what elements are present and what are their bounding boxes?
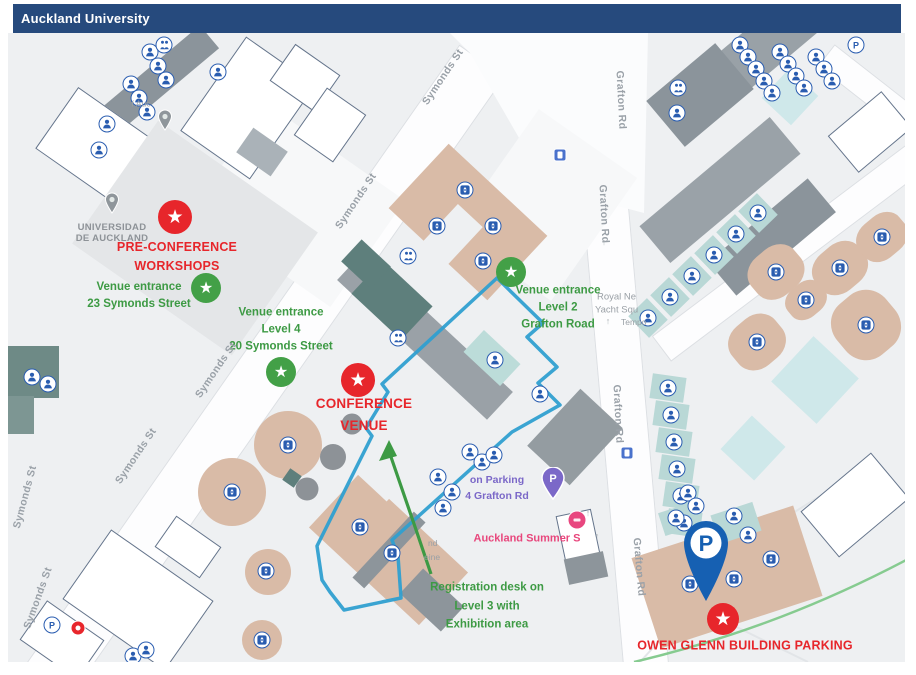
person-icon[interactable] xyxy=(666,434,683,451)
wc-icon[interactable] xyxy=(156,37,173,54)
entrance-23-marker[interactable]: ★ xyxy=(191,273,221,303)
lift-icon[interactable] xyxy=(258,563,275,580)
person-icon[interactable] xyxy=(660,380,677,397)
lift-icon[interactable] xyxy=(858,317,875,334)
person-icon[interactable] xyxy=(435,500,452,517)
person-icon[interactable] xyxy=(138,642,155,659)
person-icon[interactable] xyxy=(487,352,504,369)
building xyxy=(800,452,905,557)
place-label-summer-school: Auckland Summer S xyxy=(474,531,581,548)
person-icon[interactable] xyxy=(40,376,57,393)
person-icon[interactable] xyxy=(669,105,686,122)
building xyxy=(720,415,785,480)
wc-icon[interactable] xyxy=(400,248,417,265)
registration-arrowhead xyxy=(379,440,397,461)
person-icon[interactable] xyxy=(486,447,503,464)
place-label-uni-fragment: f Auc xyxy=(132,96,151,113)
bus-stop-icon[interactable] xyxy=(621,447,634,460)
building xyxy=(8,396,34,434)
red-poi-icon[interactable] xyxy=(71,621,86,636)
road-arrow-icon: ↑ xyxy=(595,531,600,541)
person-icon[interactable] xyxy=(662,289,679,306)
person-icon[interactable] xyxy=(750,205,767,222)
lift-icon[interactable] xyxy=(874,229,891,246)
person-icon[interactable] xyxy=(824,73,841,90)
annotation-entrance-l4: Venue entrance Level 4 20 Symonds Street xyxy=(229,305,333,356)
svg-text:P: P xyxy=(549,473,556,485)
person-icon[interactable] xyxy=(684,268,701,285)
person-icon[interactable] xyxy=(764,85,781,102)
person-icon[interactable] xyxy=(532,386,549,403)
owen-glenn-marker[interactable]: ★ xyxy=(707,603,739,635)
svg-text:P: P xyxy=(699,531,714,556)
lift-icon[interactable] xyxy=(798,292,815,309)
page-title: Auckland University xyxy=(21,11,150,26)
p-circle-icon[interactable]: P xyxy=(848,37,865,54)
owen-glenn-parking-pin[interactable]: P xyxy=(681,519,731,603)
map-pin-icon[interactable] xyxy=(104,192,120,214)
place-label-royal-3: Tempo xyxy=(621,317,647,327)
map-fragment-1: nd xyxy=(428,538,437,548)
road-arrow-icon: ↑ xyxy=(586,508,591,518)
lift-icon[interactable] xyxy=(429,218,446,235)
p-circle-icon[interactable]: P xyxy=(44,617,61,634)
lift-icon[interactable] xyxy=(224,484,241,501)
person-icon[interactable] xyxy=(728,226,745,243)
summer-school-marker[interactable] xyxy=(568,511,587,530)
person-icon[interactable] xyxy=(740,527,757,544)
campus-map: PP xyxy=(8,33,905,662)
entrance-l2-marker[interactable]: ★ xyxy=(496,257,526,287)
entrance-l4-marker[interactable]: ★ xyxy=(266,357,296,387)
person-icon[interactable] xyxy=(669,461,686,478)
road-arrow-icon: ↑ xyxy=(602,237,607,247)
annotation-entrance-l2: Venue entrance Level 2 Grafton Road xyxy=(515,283,600,334)
person-icon[interactable] xyxy=(158,72,175,89)
annotation-owen-glenn: OWEN GLENN BUILDING PARKING xyxy=(637,637,853,656)
annotation-entrance-23: Venue entrance 23 Symonds Street xyxy=(87,279,191,313)
building xyxy=(320,444,346,470)
building xyxy=(296,478,319,501)
lift-icon[interactable] xyxy=(457,182,474,199)
lift-icon[interactable] xyxy=(475,253,492,270)
lift-icon[interactable] xyxy=(384,545,401,562)
annotation-conference-venue: CONFERENCE VENUE xyxy=(316,393,413,437)
map-fragment-2: eine xyxy=(424,552,440,562)
person-icon[interactable] xyxy=(210,64,227,81)
title-bar: Auckland University xyxy=(13,4,901,33)
pre-conference-marker[interactable]: ★ xyxy=(158,200,192,234)
road-arrow-icon: ↑ xyxy=(606,316,611,326)
person-icon[interactable] xyxy=(24,369,41,386)
person-icon[interactable] xyxy=(663,407,680,424)
lift-icon[interactable] xyxy=(280,437,297,454)
place-label-royal-2: Yacht Squ xyxy=(595,305,638,316)
annotation-pre-conference: PRE-CONFERENCE WORKSHOPS xyxy=(117,238,237,276)
place-label-wilson-parking: on Parking 4 Grafton Rd xyxy=(465,472,529,504)
person-icon[interactable] xyxy=(706,247,723,264)
lift-icon[interactable] xyxy=(254,632,271,649)
annotation-registration: Registration desk on Level 3 with Exhibi… xyxy=(430,578,544,634)
map-pin-icon[interactable] xyxy=(157,109,173,131)
person-icon[interactable] xyxy=(444,484,461,501)
place-label-royal-1: Royal Ne xyxy=(597,292,636,303)
conference-venue-marker[interactable]: ★ xyxy=(341,363,375,397)
person-icon[interactable] xyxy=(91,142,108,159)
lift-icon[interactable] xyxy=(352,519,369,536)
lift-icon[interactable] xyxy=(768,264,785,281)
lift-icon[interactable] xyxy=(485,218,502,235)
wc-icon[interactable] xyxy=(390,330,407,347)
bus-stop-icon[interactable] xyxy=(554,149,567,162)
wc-icon[interactable] xyxy=(670,80,687,97)
lift-icon[interactable] xyxy=(749,334,766,351)
page: Auckland University PP UNIVERSIDAD DE AU… xyxy=(0,0,916,675)
lift-icon[interactable] xyxy=(763,551,780,568)
purple-parking-pin[interactable]: P xyxy=(540,467,566,501)
person-icon[interactable] xyxy=(99,116,116,133)
person-icon[interactable] xyxy=(430,469,447,486)
person-icon[interactable] xyxy=(796,80,813,97)
lift-icon[interactable] xyxy=(832,260,849,277)
person-icon[interactable] xyxy=(688,498,705,515)
